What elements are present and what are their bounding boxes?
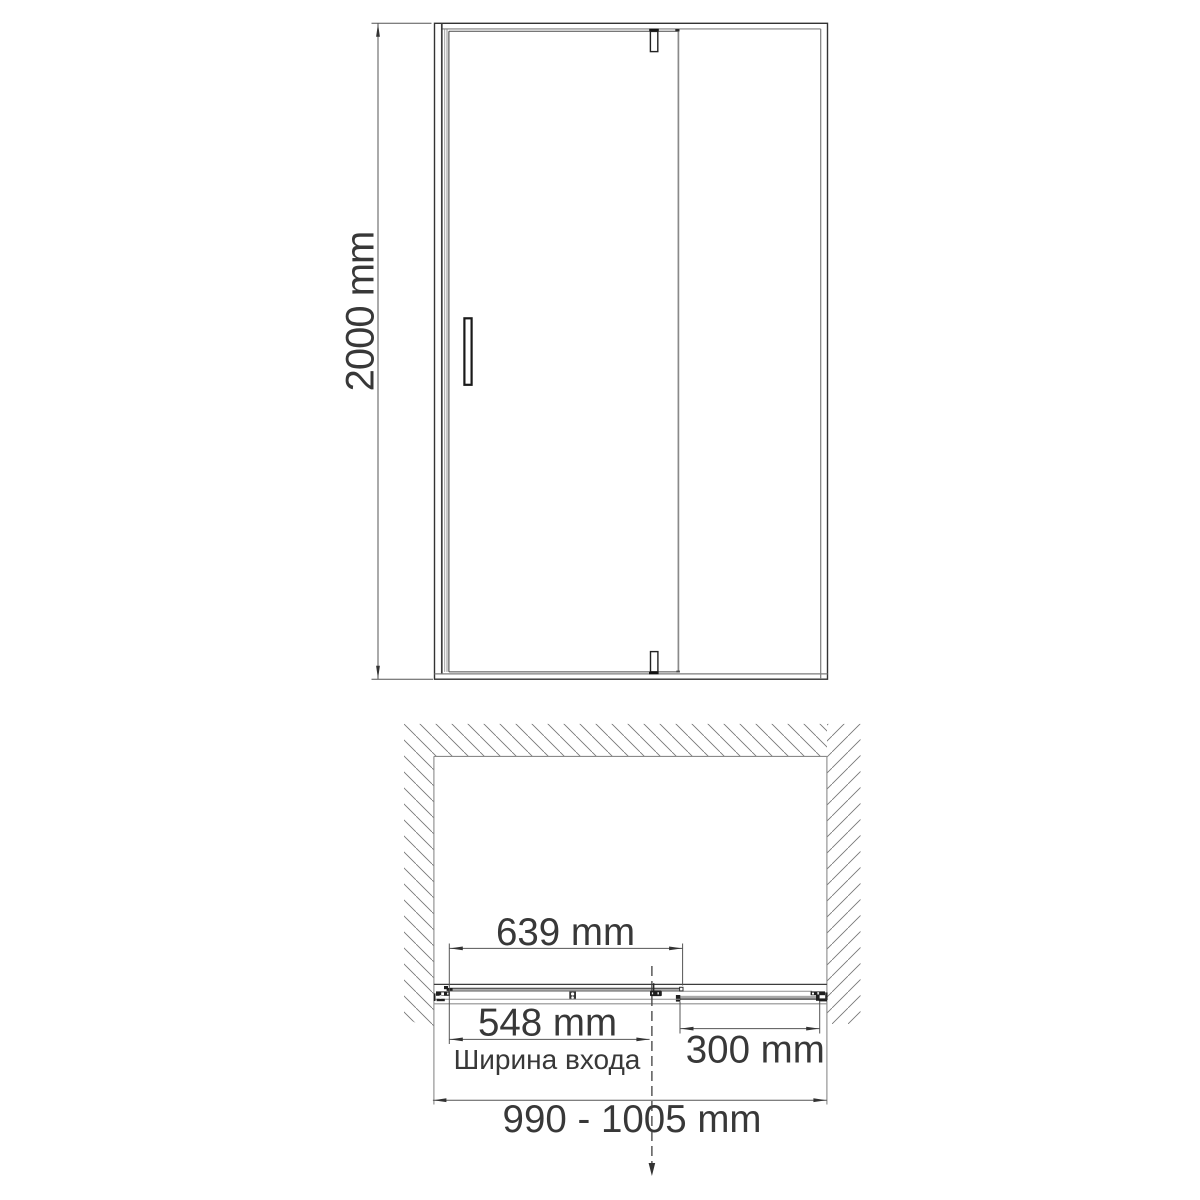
svg-text:990 - 1005 mm: 990 - 1005 mm (503, 1098, 762, 1141)
svg-text:548 mm: 548 mm (478, 1001, 617, 1044)
svg-text:2000 mm: 2000 mm (339, 232, 383, 392)
svg-text:639 mm: 639 mm (496, 911, 635, 954)
svg-text:Ширина входа: Ширина входа (454, 1044, 641, 1075)
svg-text:300 mm: 300 mm (686, 1028, 825, 1071)
